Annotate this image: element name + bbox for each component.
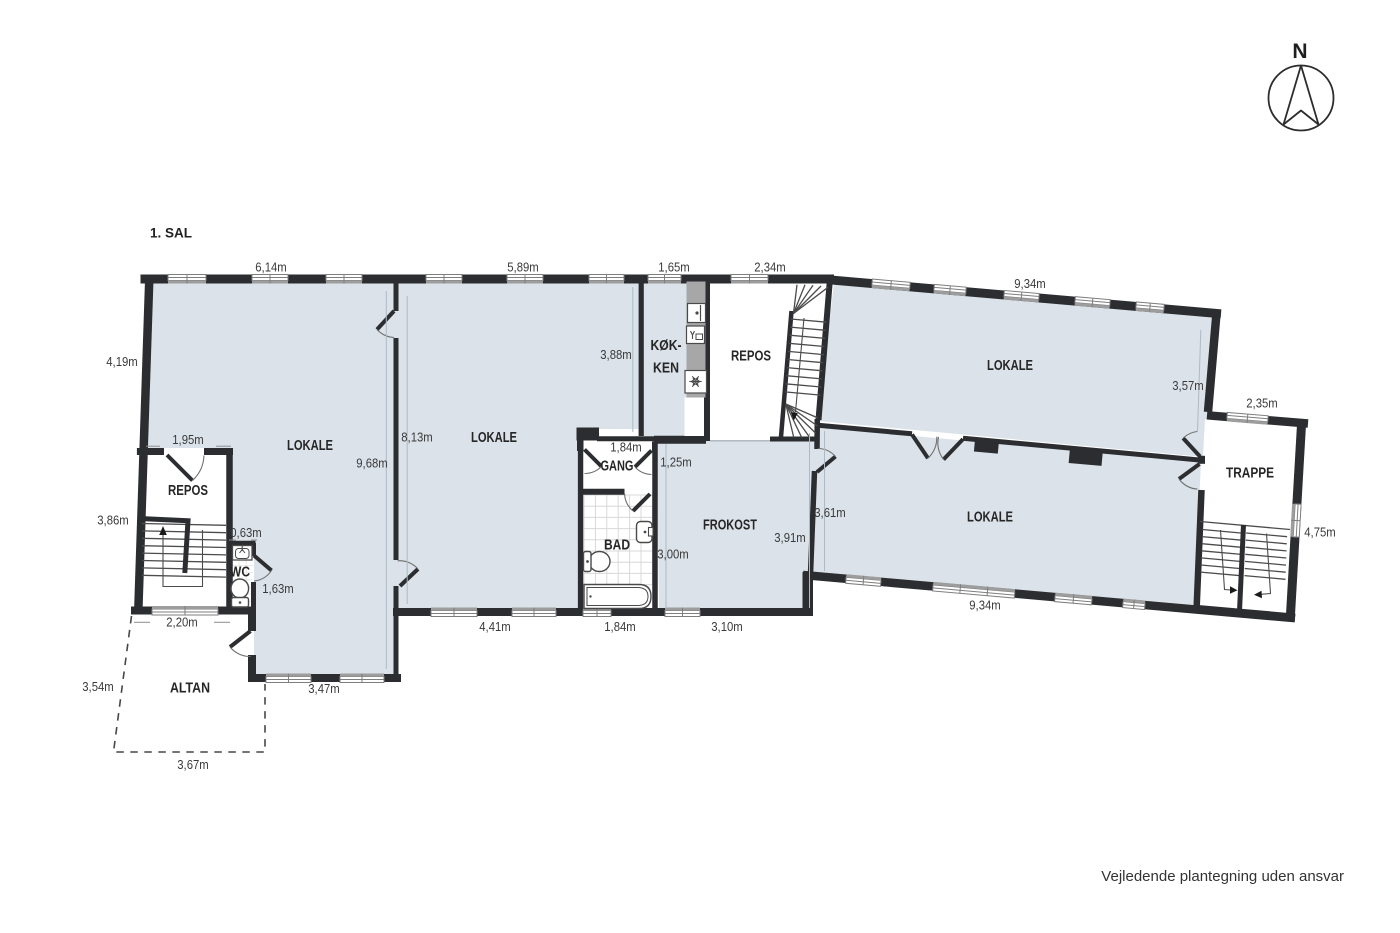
svg-text:9,68m: 9,68m xyxy=(356,456,388,471)
svg-text:5,89m: 5,89m xyxy=(507,260,539,275)
svg-text:1,65m: 1,65m xyxy=(658,260,690,275)
svg-text:FROKOST: FROKOST xyxy=(703,518,757,534)
svg-text:3,54m: 3,54m xyxy=(82,679,114,694)
svg-text:1,84m: 1,84m xyxy=(610,440,642,455)
svg-text:Vejledende plantegning uden an: Vejledende plantegning uden ansvar xyxy=(1101,868,1344,885)
svg-text:ALTAN: ALTAN xyxy=(170,681,210,697)
svg-text:KEN: KEN xyxy=(653,361,679,377)
svg-text:9,34m: 9,34m xyxy=(1014,276,1046,291)
svg-text:3,57m: 3,57m xyxy=(1172,378,1204,393)
svg-text:3,88m: 3,88m xyxy=(600,347,632,362)
svg-text:BAD: BAD xyxy=(604,538,630,554)
svg-text:3,86m: 3,86m xyxy=(97,513,129,528)
svg-text:LOKALE: LOKALE xyxy=(471,430,517,446)
svg-text:4,19m: 4,19m xyxy=(106,354,138,369)
svg-text:2,34m: 2,34m xyxy=(754,260,786,275)
svg-text:WC: WC xyxy=(230,565,250,581)
svg-text:GANG: GANG xyxy=(601,459,634,475)
svg-text:2,35m: 2,35m xyxy=(1246,396,1278,411)
svg-text:LOKALE: LOKALE xyxy=(967,510,1013,526)
svg-text:TRAPPE: TRAPPE xyxy=(1226,466,1274,482)
svg-text:9,34m: 9,34m xyxy=(969,598,1001,613)
svg-text:1,63m: 1,63m xyxy=(262,581,294,596)
svg-text:3,47m: 3,47m xyxy=(308,681,340,696)
svg-text:8,13m: 8,13m xyxy=(401,430,433,445)
svg-text:KØK-: KØK- xyxy=(651,338,682,354)
svg-text:3,00m: 3,00m xyxy=(657,547,689,562)
svg-text:3,91m: 3,91m xyxy=(774,530,806,545)
svg-text:4,41m: 4,41m xyxy=(479,619,511,634)
svg-text:3,61m: 3,61m xyxy=(814,505,846,520)
svg-text:4,75m: 4,75m xyxy=(1304,525,1336,540)
svg-text:1,84m: 1,84m xyxy=(604,619,636,634)
svg-text:LOKALE: LOKALE xyxy=(287,438,333,454)
svg-text:LOKALE: LOKALE xyxy=(987,358,1033,374)
svg-text:1. SAL: 1. SAL xyxy=(150,226,192,241)
svg-text:3,10m: 3,10m xyxy=(711,619,743,634)
svg-text:REPOS: REPOS xyxy=(731,349,771,365)
svg-text:0,63m: 0,63m xyxy=(230,525,262,540)
svg-text:1,25m: 1,25m xyxy=(660,455,692,470)
svg-text:N: N xyxy=(1292,40,1307,63)
svg-text:REPOS: REPOS xyxy=(168,483,208,499)
svg-text:2,20m: 2,20m xyxy=(166,615,198,630)
svg-text:1,95m: 1,95m xyxy=(172,432,204,447)
svg-text:3,67m: 3,67m xyxy=(177,757,209,772)
svg-text:6,14m: 6,14m xyxy=(255,260,287,275)
